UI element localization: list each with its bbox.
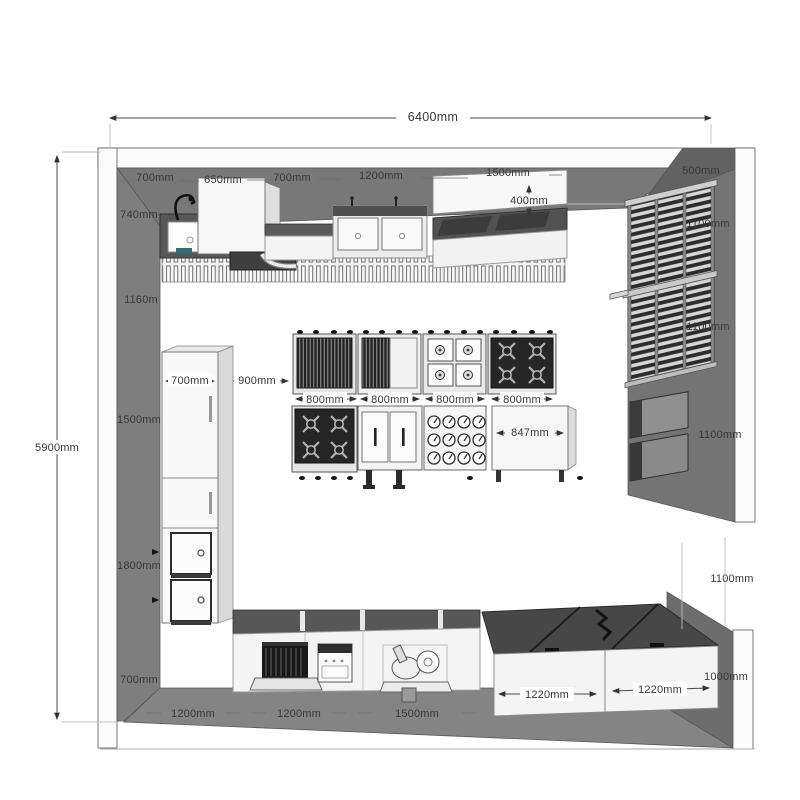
dim-right-section-1: 1100mm [686, 218, 729, 230]
accent-strip [176, 248, 192, 254]
counter-section [265, 224, 333, 260]
dim-top-section-5: 1500mm [486, 167, 530, 179]
dim-shelf-depth: 400mm [510, 195, 548, 207]
dim-top-section-3: 700mm [273, 172, 311, 184]
dim-left-section-2: 1160m [124, 294, 158, 306]
dim-right-section-4: 1100mm [710, 573, 753, 585]
dim-island-unit-4: 800mm [503, 394, 541, 406]
dim-top-section-4: 1200mm [359, 170, 403, 182]
dim-island-end-unit: 847mm [511, 427, 549, 439]
left-wall-face [117, 168, 160, 721]
dim-right-section-3: 1100mm [698, 429, 741, 441]
dim-fridge-width: 700mm [171, 375, 209, 387]
left-wall-cap [98, 148, 117, 748]
bain-marie-unit [423, 334, 486, 394]
gas-range-unit [292, 406, 357, 480]
lower-right-wall-cap [733, 630, 753, 749]
dim-island-unit-2: 800mm [371, 394, 409, 406]
bottom-right-counters [482, 604, 718, 716]
dim-left-section-5: 700mm [120, 674, 158, 686]
dim-island-unit-3: 800mm [436, 394, 474, 406]
gas-range-top-unit [488, 334, 556, 394]
dim-overall-depth: 5900mm [35, 442, 79, 454]
lower-cabinet-doors [152, 533, 211, 625]
fridge-handle [209, 396, 212, 422]
dim-bottom-section-3: 1500mm [395, 708, 439, 720]
dim-bottom-section-1: 1200mm [171, 708, 215, 720]
bottom-left-counter [233, 610, 480, 702]
fridge-handle [209, 492, 212, 514]
stockpot-knob-unit [424, 406, 486, 480]
dim-island-unit-1: 800mm [306, 394, 344, 406]
worktable-cabinet [358, 406, 422, 489]
shelf-counter-section [433, 170, 567, 268]
dim-right-counter-height: 1000mm [704, 671, 748, 683]
slicer-pedestal [402, 688, 416, 702]
cooking-island [292, 330, 583, 489]
right-wall-cap [735, 148, 755, 522]
kitchen-plan-drawing: 6400mm 5900mm 700mm 650mm 700mm 1200mm 1… [0, 0, 800, 800]
countertop-oven [318, 644, 352, 682]
dim-top-section-1: 700mm [136, 172, 174, 184]
counter-front [494, 646, 718, 716]
left-column [152, 346, 233, 625]
dim-bottom-counter-2: 1220mm [638, 684, 682, 696]
top-wall-cap [98, 148, 683, 168]
island-end-box [492, 406, 583, 482]
dim-top-section-2: 650mm [204, 174, 242, 186]
dim-rack-depth: 500mm [682, 165, 720, 177]
dim-aisle-width: 900mm [238, 375, 276, 387]
dim-left-section-1: 740mm [120, 209, 158, 221]
dim-bottom-section-2: 1200mm [277, 708, 321, 720]
dim-left-section-3: 1500mm [117, 414, 161, 426]
dim-bottom-counter-1: 1220mm [525, 689, 569, 701]
kitchen-floor-plan: 6400mm 5900mm 700mm 650mm 700mm 1200mm 1… [0, 0, 800, 800]
dim-right-section-2: 1100mm [686, 321, 729, 333]
dim-overall-width: 6400mm [408, 110, 458, 124]
dim-left-section-4: 1800mm [117, 560, 161, 572]
